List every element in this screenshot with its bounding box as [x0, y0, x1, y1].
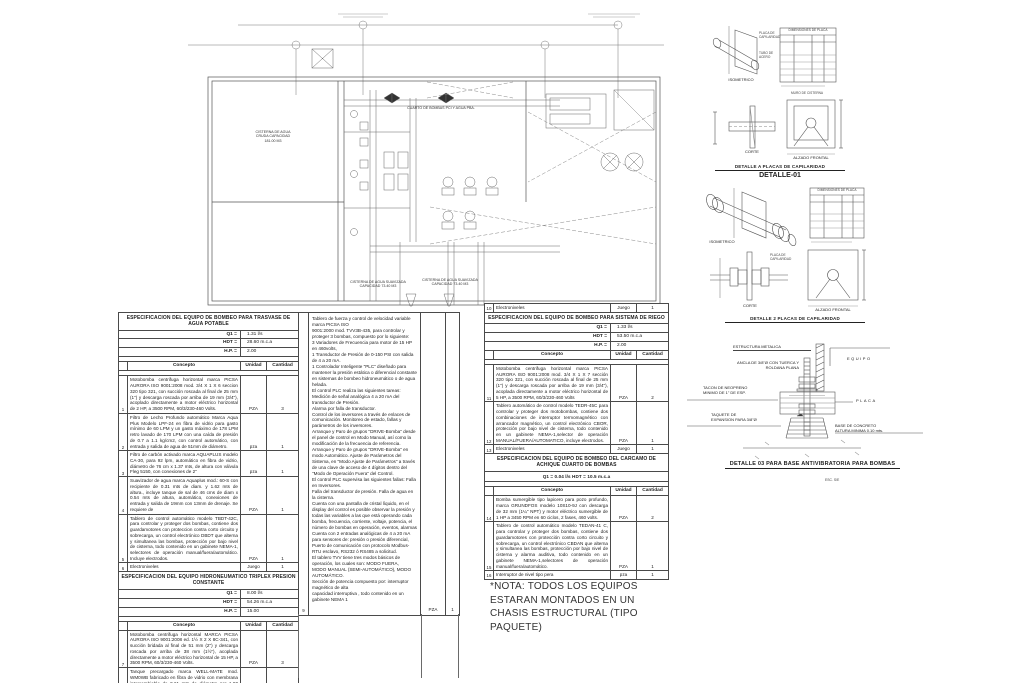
cantidad-cell: 1: [637, 571, 669, 580]
row-num: 14: [485, 496, 494, 522]
unidad-cell: PZA: [241, 514, 267, 563]
unidad-cell: PZA: [611, 496, 637, 522]
spec-row-9-vfd-panel: 9 Tablero de fuerza y control de velocid…: [298, 312, 460, 616]
isometrico-label: ISOMETRICO: [719, 78, 763, 83]
row-num: 9: [299, 313, 309, 615]
cantidad-cell: 1: [267, 563, 299, 572]
concepto-cell: Tablero de fuerza y control de velocidad…: [309, 313, 421, 615]
table-title: ESPECIFICACION DEL EQUIPO DE BOMBEO PARA…: [119, 313, 299, 331]
tubo-acero-label: TUBO DE ACERO: [759, 52, 781, 60]
concepto-cell: Motobomba centrifuga horizontal marca PI…: [494, 364, 611, 401]
param-value: 1.31 l/s: [241, 330, 299, 339]
row-num: 4: [119, 477, 128, 514]
header-unidad: Unidad: [241, 621, 267, 630]
detail-01-linework: [695, 22, 1015, 184]
detail-02-title: DETALLE 2 PLACAS DE CAPILARIDAD: [725, 316, 865, 323]
detail-02-capillarity-plate: ISOMETRICO DIMENSIONES DE PLACA PLACA DE…: [690, 180, 1020, 325]
general-note: *NOTA: TODOS LOS EQUIPOS ESTARAN MONTADO…: [490, 580, 658, 634]
table-row: 1Motobomba centrifuga horizontal marca P…: [119, 376, 299, 413]
row-num: 10: [485, 304, 494, 313]
table-row: 15Tablero de control automático modelo T…: [485, 522, 669, 571]
table-row: 16Interruptor de nivel tipo perapza1: [485, 571, 669, 580]
row-num: 6: [119, 563, 128, 572]
row-num: 8: [119, 668, 128, 683]
cantidad-cell: 2: [637, 364, 669, 401]
concepto-cell: Tablero de control automático modelo TED…: [494, 522, 611, 571]
param-label: H.P. =: [119, 607, 241, 616]
concepto-cell: Filtro de carbón activado marca AQUAPLUS…: [128, 451, 241, 477]
concepto-cell: Interruptor de nivel tipo pera: [494, 571, 611, 580]
cantidad-cell: 1: [637, 445, 669, 454]
table-title: ESPECIFICACION DEL EQUIPO DE BOMBEO PARA…: [485, 312, 669, 323]
border-extension: [421, 614, 422, 678]
table-row: 14Bomba sumergible tipo lapicero para po…: [485, 496, 669, 522]
alzado-frontal-label: ALZADO FRONTAL: [805, 308, 861, 313]
cantidad-cell: 2: [637, 496, 669, 522]
cantidad-cell: 1: [267, 668, 299, 683]
cantidad-cell: 1: [267, 477, 299, 514]
param-label: Q1 =: [485, 323, 611, 332]
header-cantidad: Cantidad: [637, 350, 669, 359]
cantidad-cell: 1: [637, 304, 669, 313]
detail-01-code: DETALLE-01: [735, 172, 825, 179]
concepto-cell: Filtro de Lecho Profundo automático Marc…: [128, 413, 241, 450]
param-label: H.P. =: [119, 348, 241, 357]
table-row: 10ElectronivelesJuego1: [485, 304, 669, 313]
dimensiones-placa-title: DIMENSIONES DE PLACA: [781, 29, 835, 33]
param-label: H.P. =: [485, 341, 611, 350]
table-row: 3Filtro de carbón activado marca AQUAPLU…: [119, 451, 299, 477]
param-label: Q1 =: [119, 589, 241, 598]
row-num: 12: [485, 402, 494, 445]
param-value: 1.33 l/s: [611, 323, 669, 332]
table-row: 2Filtro de Lecho Profundo automático Mar…: [119, 413, 299, 450]
taquete-expansion-label: TAQUETE DE EXPANSION PARA 3/8"Ø: [711, 413, 773, 423]
param-value: 8.00 l/s: [241, 589, 299, 598]
param-value: 2.00: [241, 348, 299, 357]
cantidad-cell: 1: [267, 514, 299, 563]
concepto-cell: Electroniveles: [494, 304, 611, 313]
detail-01-title: DETALLE A PLACAS DE CAPILARIDAD: [715, 164, 845, 171]
header-concepto: Concepto: [128, 362, 241, 371]
table-row: 5Tablero de control automático modelo TB…: [119, 514, 299, 563]
param-label: HDT =: [485, 332, 611, 341]
header-cantidad: Cantidad: [637, 487, 669, 496]
unidad-cell: PZA: [241, 630, 267, 667]
header-concepto: Concepto: [128, 621, 241, 630]
corte-label: CORTE: [735, 304, 765, 309]
table-params: Q1 = 0.04 l/s HDT = 10.5 m.c.a: [485, 471, 669, 482]
unidad-cell: PZA: [611, 364, 637, 401]
row-num: 7: [119, 630, 128, 667]
concepto-cell: Electroniveles: [128, 563, 241, 572]
estructura-metalica-label: ESTRUCTURA METALICA: [733, 345, 811, 351]
scale-note: ESC. S/E: [825, 478, 855, 482]
floor-plan: CISTERNA DE AGUA CRUDA CAPACIDAD 181.00 …: [148, 2, 668, 308]
floor-plan-linework: [148, 2, 668, 310]
header-unidad: Unidad: [241, 362, 267, 371]
cantidad-cell: 3: [267, 376, 299, 413]
concepto-cell: Tablero automático de control modelo TED…: [494, 402, 611, 445]
drawing-sheet: CISTERNA DE AGUA CRUDA CAPACIDAD 181.00 …: [0, 0, 1024, 683]
table-row: 7Motobomba centrifuga horizontal MARCA P…: [119, 630, 299, 667]
unidad-cell: PZA: [421, 313, 446, 615]
table-row: 4Suavizador de agua marca Aquaplus mod.:…: [119, 477, 299, 514]
alzado-frontal-label: ALZADO FRONTAL: [783, 156, 839, 161]
header-cell: [119, 621, 128, 630]
concepto-cell: Suavizador de agua marca Aquaplus mod.: …: [128, 477, 241, 514]
param-value: 2.00: [611, 341, 669, 350]
row-num: 13: [485, 445, 494, 454]
row-num: 11: [485, 364, 494, 401]
concepto-cell: Tanque precargado marca WELL-MATE mod. W…: [128, 668, 241, 683]
table-row: 8Tanque precargado marca WELL-MATE mod. …: [119, 668, 299, 683]
table-title: ESPECIFICACION DEL EQUIPO HIDRONEUMATICO…: [119, 572, 299, 590]
cisterna-cruda-label: CISTERNA DE AGUA CRUDA CAPACIDAD 181.00 …: [228, 130, 318, 143]
base-concreto-label: BASE DE CONCRETO ALTURA MINIMA 0.10 mts.: [835, 424, 899, 434]
unidad-cell: PZA: [611, 402, 637, 445]
param-value: 54.26 m.c.a: [241, 598, 299, 607]
cantidad-cell: 1: [637, 522, 669, 571]
unidad-cell: pza: [241, 451, 267, 477]
header-cell: [485, 487, 494, 496]
param-value: 28.60 m.c.a: [241, 339, 299, 348]
concepto-cell: Bomba sumergible tipo lapicero para pozo…: [494, 496, 611, 522]
table-title: ESPECIFICACION DEL EQUIPO DE BOMBEO DEL …: [485, 454, 669, 472]
header-concepto: Concepto: [494, 487, 611, 496]
detail-03-antivibration-base: ESTRUCTURA METALICA ANCLA DE 3/8"Ø CON T…: [685, 330, 1015, 485]
unidad-cell: Juego: [611, 445, 637, 454]
unidad-cell: pza: [611, 571, 637, 580]
unidad-cell: Juego: [241, 563, 267, 572]
detail-03-title: DETALLE 03 PARA BASE ANTIVIBRATORIA PARA…: [725, 461, 900, 469]
border-extension: [298, 614, 299, 678]
unidad-cell: PZA: [241, 376, 267, 413]
spec-table-riego: 10ElectronivelesJuego1 ESPECIFICACION DE…: [484, 303, 668, 580]
header-cell: [485, 350, 494, 359]
placa-label: PLACA: [856, 399, 892, 404]
unidad-cell: pza: [241, 413, 267, 450]
dimensiones-placa-title: DIMENSIONES DE PLACA: [810, 189, 864, 193]
unidad-cell: PZA: [611, 522, 637, 571]
row-num: 2: [119, 413, 128, 450]
concepto-cell: Motobomba centrifuga horizontal marca PI…: [128, 376, 241, 413]
placa-capilaridad-label: PLACA DE CAPILARIDAD: [770, 254, 796, 262]
param-label: HDT =: [119, 339, 241, 348]
unidad-cell: PZA: [241, 477, 267, 514]
placa-capilaridad-label: PLACA DE CAPILARIDAD: [759, 32, 785, 40]
isometrico-label: ISOMETRICO: [700, 240, 744, 245]
table-row: 13ElectronivelesJuego1: [485, 445, 669, 454]
cisterna-suavizada-label-1: CISTERNA DE AGUA SUAVIZADA CAPACIDAD 73.…: [344, 280, 412, 289]
detail-01-capillarity-plate: PLACA DE CAPILARIDAD TUBO DE ACERO ISOME…: [695, 22, 1015, 184]
cisterna-suavizada-label-2: CISTERNA DE AGUA SUAVIZADA CAPACIDAD 73.…: [416, 278, 484, 287]
unidad-cell: Juego: [611, 304, 637, 313]
row-num: 1: [119, 376, 128, 413]
row-num: 3: [119, 451, 128, 477]
cantidad-cell: 1: [446, 313, 459, 615]
header-cantidad: Cantidad: [267, 362, 299, 371]
unidad-cell: pza: [241, 668, 267, 683]
header-cell: [119, 362, 128, 371]
concepto-cell: Motobomba centrifuga horizontal MARCA PI…: [128, 630, 241, 667]
cantidad-cell: 3: [267, 630, 299, 667]
equipo-label: EQUIPO: [847, 357, 893, 362]
row-num: 15: [485, 522, 494, 571]
param-label: HDT =: [119, 598, 241, 607]
table-row: 11Motobomba centrifuga horizontal marca …: [485, 364, 669, 401]
concepto-cell: Tablero de control automático modelo TBD…: [128, 514, 241, 563]
row-num: 5: [119, 514, 128, 563]
corte-label: CORTE: [737, 150, 767, 155]
table-row: 6ElectronivelesJuego1: [119, 563, 299, 572]
cantidad-cell: 1: [637, 402, 669, 445]
param-label: Q1 =: [119, 330, 241, 339]
header-cantidad: Cantidad: [267, 621, 299, 630]
header-unidad: Unidad: [611, 487, 637, 496]
param-value: 53.50 m.c.a: [611, 332, 669, 341]
header-unidad: Unidad: [611, 350, 637, 359]
header-concepto: Concepto: [494, 350, 611, 359]
spec-table-trasvase: ESPECIFICACION DEL EQUIPO DE BOMBEO PARA…: [118, 312, 298, 683]
concepto-cell: Electroniveles: [494, 445, 611, 454]
ancla-label: ANCLA DE 3/8"Ø CON TUERCA Y ROLDANA PLAN…: [713, 361, 799, 371]
tacon-neopreno-label: TACON DE NEOPRENO MINIMO DE 1" DE ESP.: [703, 386, 765, 396]
cuarto-bombas-label: CUARTO DE BOMBAS PCI Y AGUA PBA.: [376, 106, 506, 110]
cantidad-cell: 1: [267, 413, 299, 450]
table-row: 12Tablero automático de control modelo T…: [485, 402, 669, 445]
muro-cisterna-label: MURO DE CISTERNA: [791, 92, 831, 96]
border-extension: [458, 614, 459, 678]
cantidad-cell: 1: [267, 451, 299, 477]
row-num: 16: [485, 571, 494, 580]
param-value: 15.00: [241, 607, 299, 616]
